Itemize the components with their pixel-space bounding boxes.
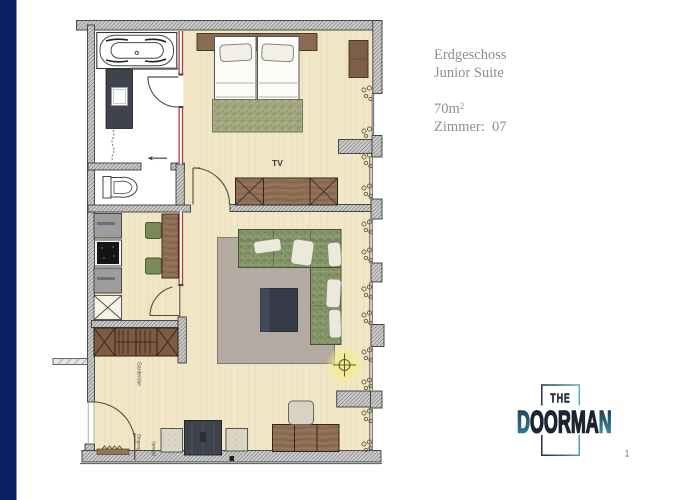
svg-text:Eingang: Eingang <box>137 434 142 451</box>
svg-text:Spiegel: Spiegel <box>152 441 157 456</box>
svg-text:Junior Suite: Junior Suite <box>434 65 504 81</box>
svg-text:1: 1 <box>625 449 630 459</box>
svg-text:Zimmer: 07: Zimmer: 07 <box>434 119 507 135</box>
svg-text:TV: TV <box>272 158 283 168</box>
svg-text:70m2: 70m2 <box>434 101 464 117</box>
svg-text:Erdgeschoss: Erdgeschoss <box>434 47 507 63</box>
svg-text:DOORMAN: DOORMAN <box>517 405 612 439</box>
svg-text:Garderobe: Garderobe <box>136 362 142 386</box>
svg-text:THE: THE <box>550 392 571 406</box>
